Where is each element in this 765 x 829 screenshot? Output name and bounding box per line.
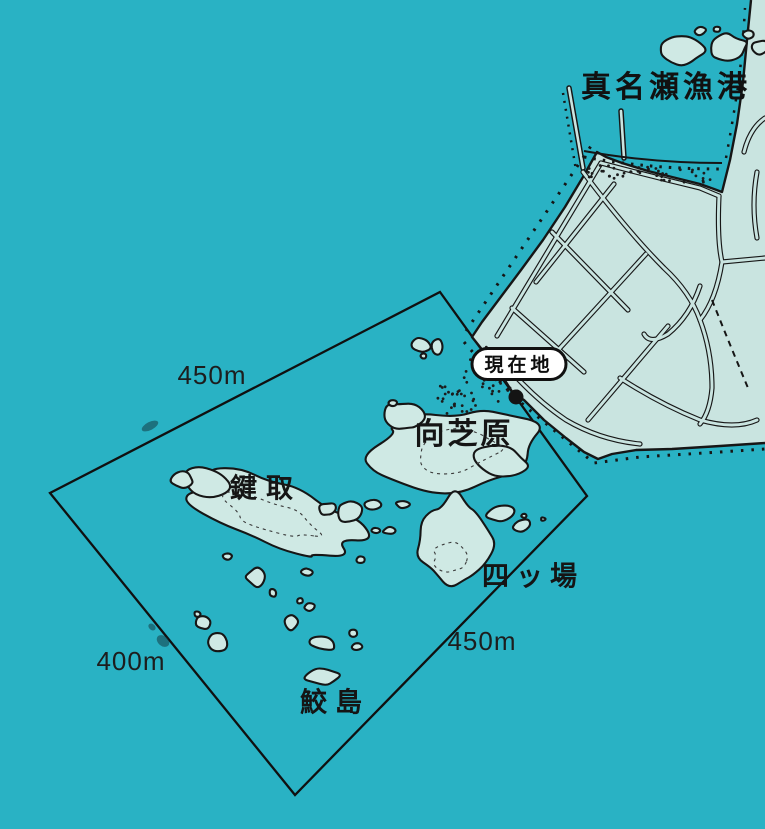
rock-formation [304, 603, 314, 611]
rock-formation [349, 630, 357, 637]
rock-formation [372, 528, 381, 533]
place-label-samejima: 鮫島 [300, 690, 370, 717]
rock-formation [541, 517, 545, 520]
rock-formation [695, 27, 706, 35]
rock-formation [743, 30, 754, 38]
current-location-marker: 現在地 [470, 347, 567, 381]
harbor-map-drawing [0, 0, 765, 829]
rock-formation [171, 471, 193, 488]
rock-formation [270, 589, 276, 597]
rock-formation [432, 339, 443, 355]
rock-formation [521, 514, 526, 518]
rock-formation [389, 400, 397, 406]
rock-formation [352, 643, 362, 650]
rock-formation [364, 500, 381, 510]
rock-formation [338, 501, 362, 521]
place-label-mukaishibahara: 向芝原 [415, 420, 514, 450]
rock-formation [297, 598, 303, 603]
rock-formation [301, 569, 313, 576]
port-title: 真名瀬漁港 [581, 73, 751, 103]
rock-formation [752, 41, 765, 55]
rock-formation [223, 553, 232, 559]
rock-formation [195, 612, 201, 617]
current-location-dot [509, 390, 524, 405]
distance-label-bottom-left: 400m [96, 648, 165, 674]
rock-formation [319, 503, 336, 514]
rock-formation [196, 616, 211, 629]
rock-formation [714, 27, 721, 32]
rock-formation [357, 556, 365, 563]
distance-label-top-left: 450m [177, 362, 246, 388]
place-label-yotsuba: 四ッ場 [482, 564, 584, 591]
distance-label-bottom-right: 450m [447, 628, 516, 654]
rock-formation [421, 353, 427, 358]
rock-formation [285, 615, 298, 630]
place-label-kagitori: 鍵取 [230, 476, 302, 503]
rock-formation [208, 633, 227, 651]
rock-formation [396, 501, 410, 508]
map-canvas: 真名瀬漁港 現在地 向芝原 鍵取 四ッ場 鮫島 450m 400m 450m [0, 0, 765, 829]
